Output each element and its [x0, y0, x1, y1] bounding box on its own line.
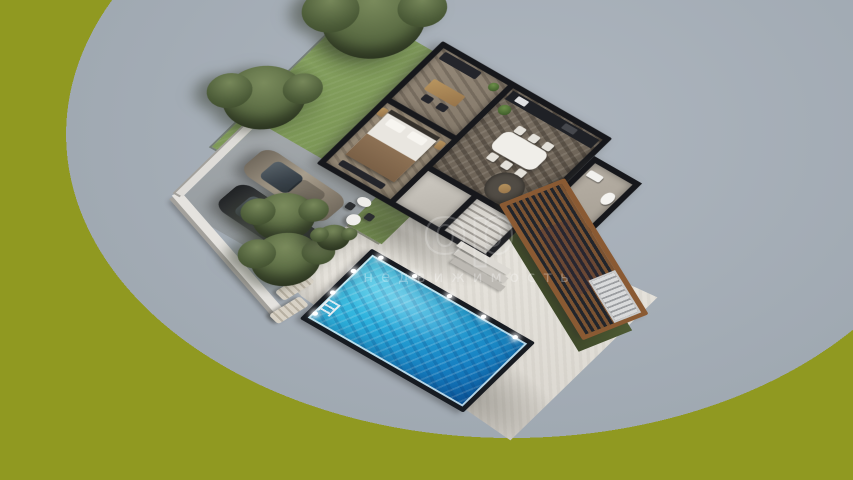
- white-louver-panel: [591, 272, 638, 320]
- pool-light: [377, 255, 385, 261]
- pool-light: [511, 334, 519, 340]
- render-canvas: ор недвижимость: [0, 0, 853, 480]
- pool-light: [349, 268, 357, 274]
- pool-light: [480, 314, 488, 320]
- pool-ladder-icon: [317, 299, 341, 317]
- pool-light: [445, 293, 453, 299]
- pool-light: [411, 273, 419, 279]
- pool-light: [311, 311, 319, 317]
- pool-light: [329, 290, 337, 296]
